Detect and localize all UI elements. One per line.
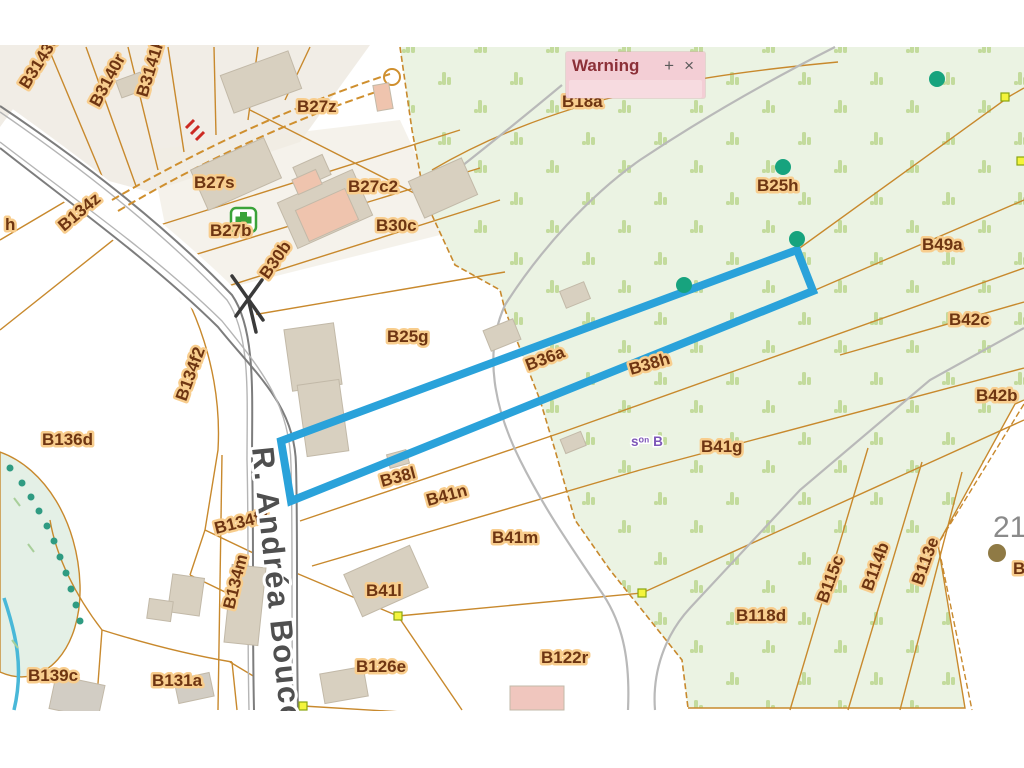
- tree-icon: [929, 71, 945, 87]
- small-tree-icon: [19, 480, 26, 487]
- parcel-label: B41l: [366, 581, 402, 600]
- small-tree-icon: [36, 508, 43, 515]
- small-tree-icon: [44, 523, 51, 530]
- small-tree-icon: [77, 618, 84, 625]
- tree-icon: [676, 277, 692, 293]
- parcel-label: B25h: [757, 176, 799, 195]
- small-tree-icon: [68, 586, 75, 593]
- maximize-button[interactable]: +: [659, 56, 679, 76]
- vertex-marker: [394, 612, 402, 620]
- parcel-label: h: [5, 215, 15, 234]
- small-tree-icon: [73, 602, 80, 609]
- parcel-label: B122r: [541, 648, 589, 667]
- house-number-dot: [988, 544, 1006, 562]
- parcel-label: B41m: [492, 528, 538, 547]
- parcel-label: B42b: [976, 386, 1018, 405]
- map-canvas[interactable]: B3143eB3140rB3141kB27zB27sB27bB27c2B30cB…: [0, 0, 1024, 768]
- house-number-label: 21: [993, 511, 1024, 544]
- parcel-label: B118d: [736, 606, 786, 625]
- tree-icon: [789, 231, 805, 247]
- warning-popup-body: [569, 80, 702, 98]
- map-viewer: B3143eB3140rB3141kB27zB27sB27bB27c2B30cB…: [0, 0, 1024, 768]
- parcel-label: B41g: [701, 437, 743, 456]
- small-tree-icon: [28, 494, 35, 501]
- small-tree-icon: [57, 554, 64, 561]
- parcel-label: B126e: [356, 657, 406, 676]
- parcel-label: B: [1013, 559, 1024, 578]
- parcel-label: B27b: [210, 221, 252, 240]
- section-note-label: sᵒⁿ B: [631, 434, 663, 449]
- tree-icon: [775, 159, 791, 175]
- parcel-label: B134f2: [172, 344, 209, 403]
- warning-popup-title: Warning: [572, 55, 659, 77]
- small-tree-icon: [51, 538, 58, 545]
- warning-popup: Warning + ×: [566, 52, 705, 98]
- vertex-marker: [1017, 157, 1024, 165]
- small-tree-icon: [7, 465, 14, 472]
- parcel-label: B42c: [949, 310, 990, 329]
- parcel-label: B27c2: [348, 177, 398, 196]
- small-tree-icon: [63, 570, 70, 577]
- parcel-label: B27s: [194, 173, 235, 192]
- parcel-label: B30c: [376, 216, 417, 235]
- parcel-label: B41n: [424, 481, 469, 510]
- vertex-marker: [1001, 93, 1009, 101]
- parcel-label: B139c: [28, 666, 78, 685]
- parcel-label: B131a: [152, 671, 203, 690]
- parcel-label: B27z: [297, 97, 337, 116]
- warning-popup-header: Warning + ×: [566, 52, 705, 78]
- parcel-label: B136d: [42, 430, 93, 449]
- parcel-label: B25g: [387, 327, 429, 346]
- close-icon[interactable]: ×: [679, 56, 699, 76]
- parcel-label: B49a: [922, 235, 963, 254]
- vertex-marker: [638, 589, 646, 597]
